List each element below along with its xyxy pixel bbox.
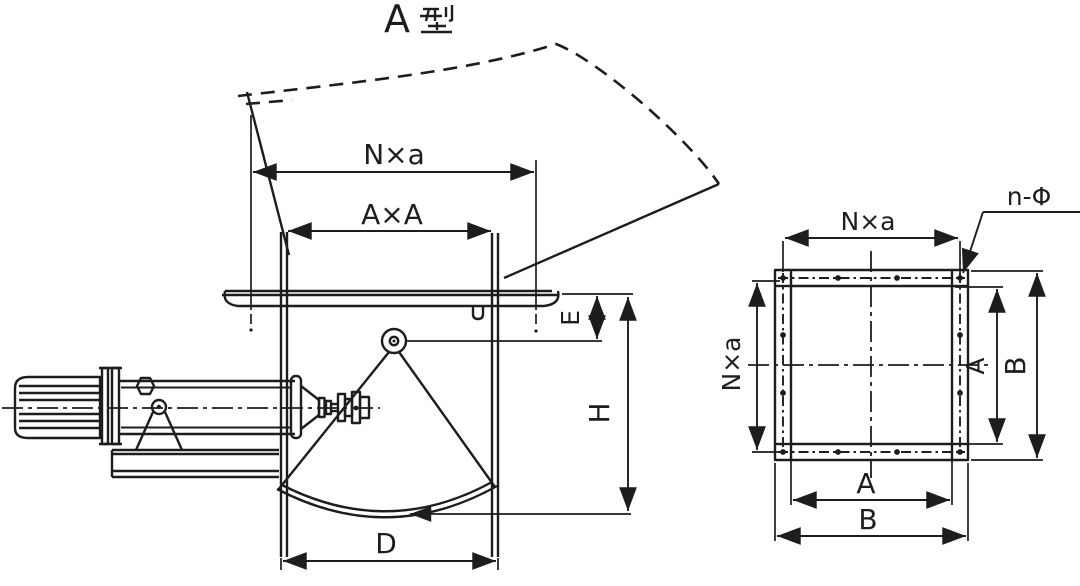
dim-label-axa: A×A — [361, 198, 423, 231]
dim-label-nxa-top: N×a — [841, 207, 896, 236]
technical-drawing-page: A N×a — [0, 0, 1080, 586]
paper-background — [0, 0, 1080, 586]
dim-label-d: D — [375, 527, 397, 560]
dim-label-e: E — [556, 310, 585, 326]
dim-label-a-vertical: A — [961, 357, 990, 374]
clevis-pin — [354, 406, 359, 411]
dim-label-nxa-side: N×a — [717, 337, 746, 392]
dim-label-b-vertical: B — [999, 356, 1032, 375]
sector-gate-drawing: A N×a — [0, 0, 1080, 586]
dim-label-b-horizontal: B — [858, 503, 877, 536]
dim-label-nphi: n-Φ — [1007, 182, 1052, 211]
dim-label-h: H — [583, 402, 616, 423]
dim-label-nxa-left-view: N×a — [363, 138, 425, 171]
dim-label-a-horizontal: A — [856, 467, 875, 500]
title-latin: A — [384, 0, 410, 41]
